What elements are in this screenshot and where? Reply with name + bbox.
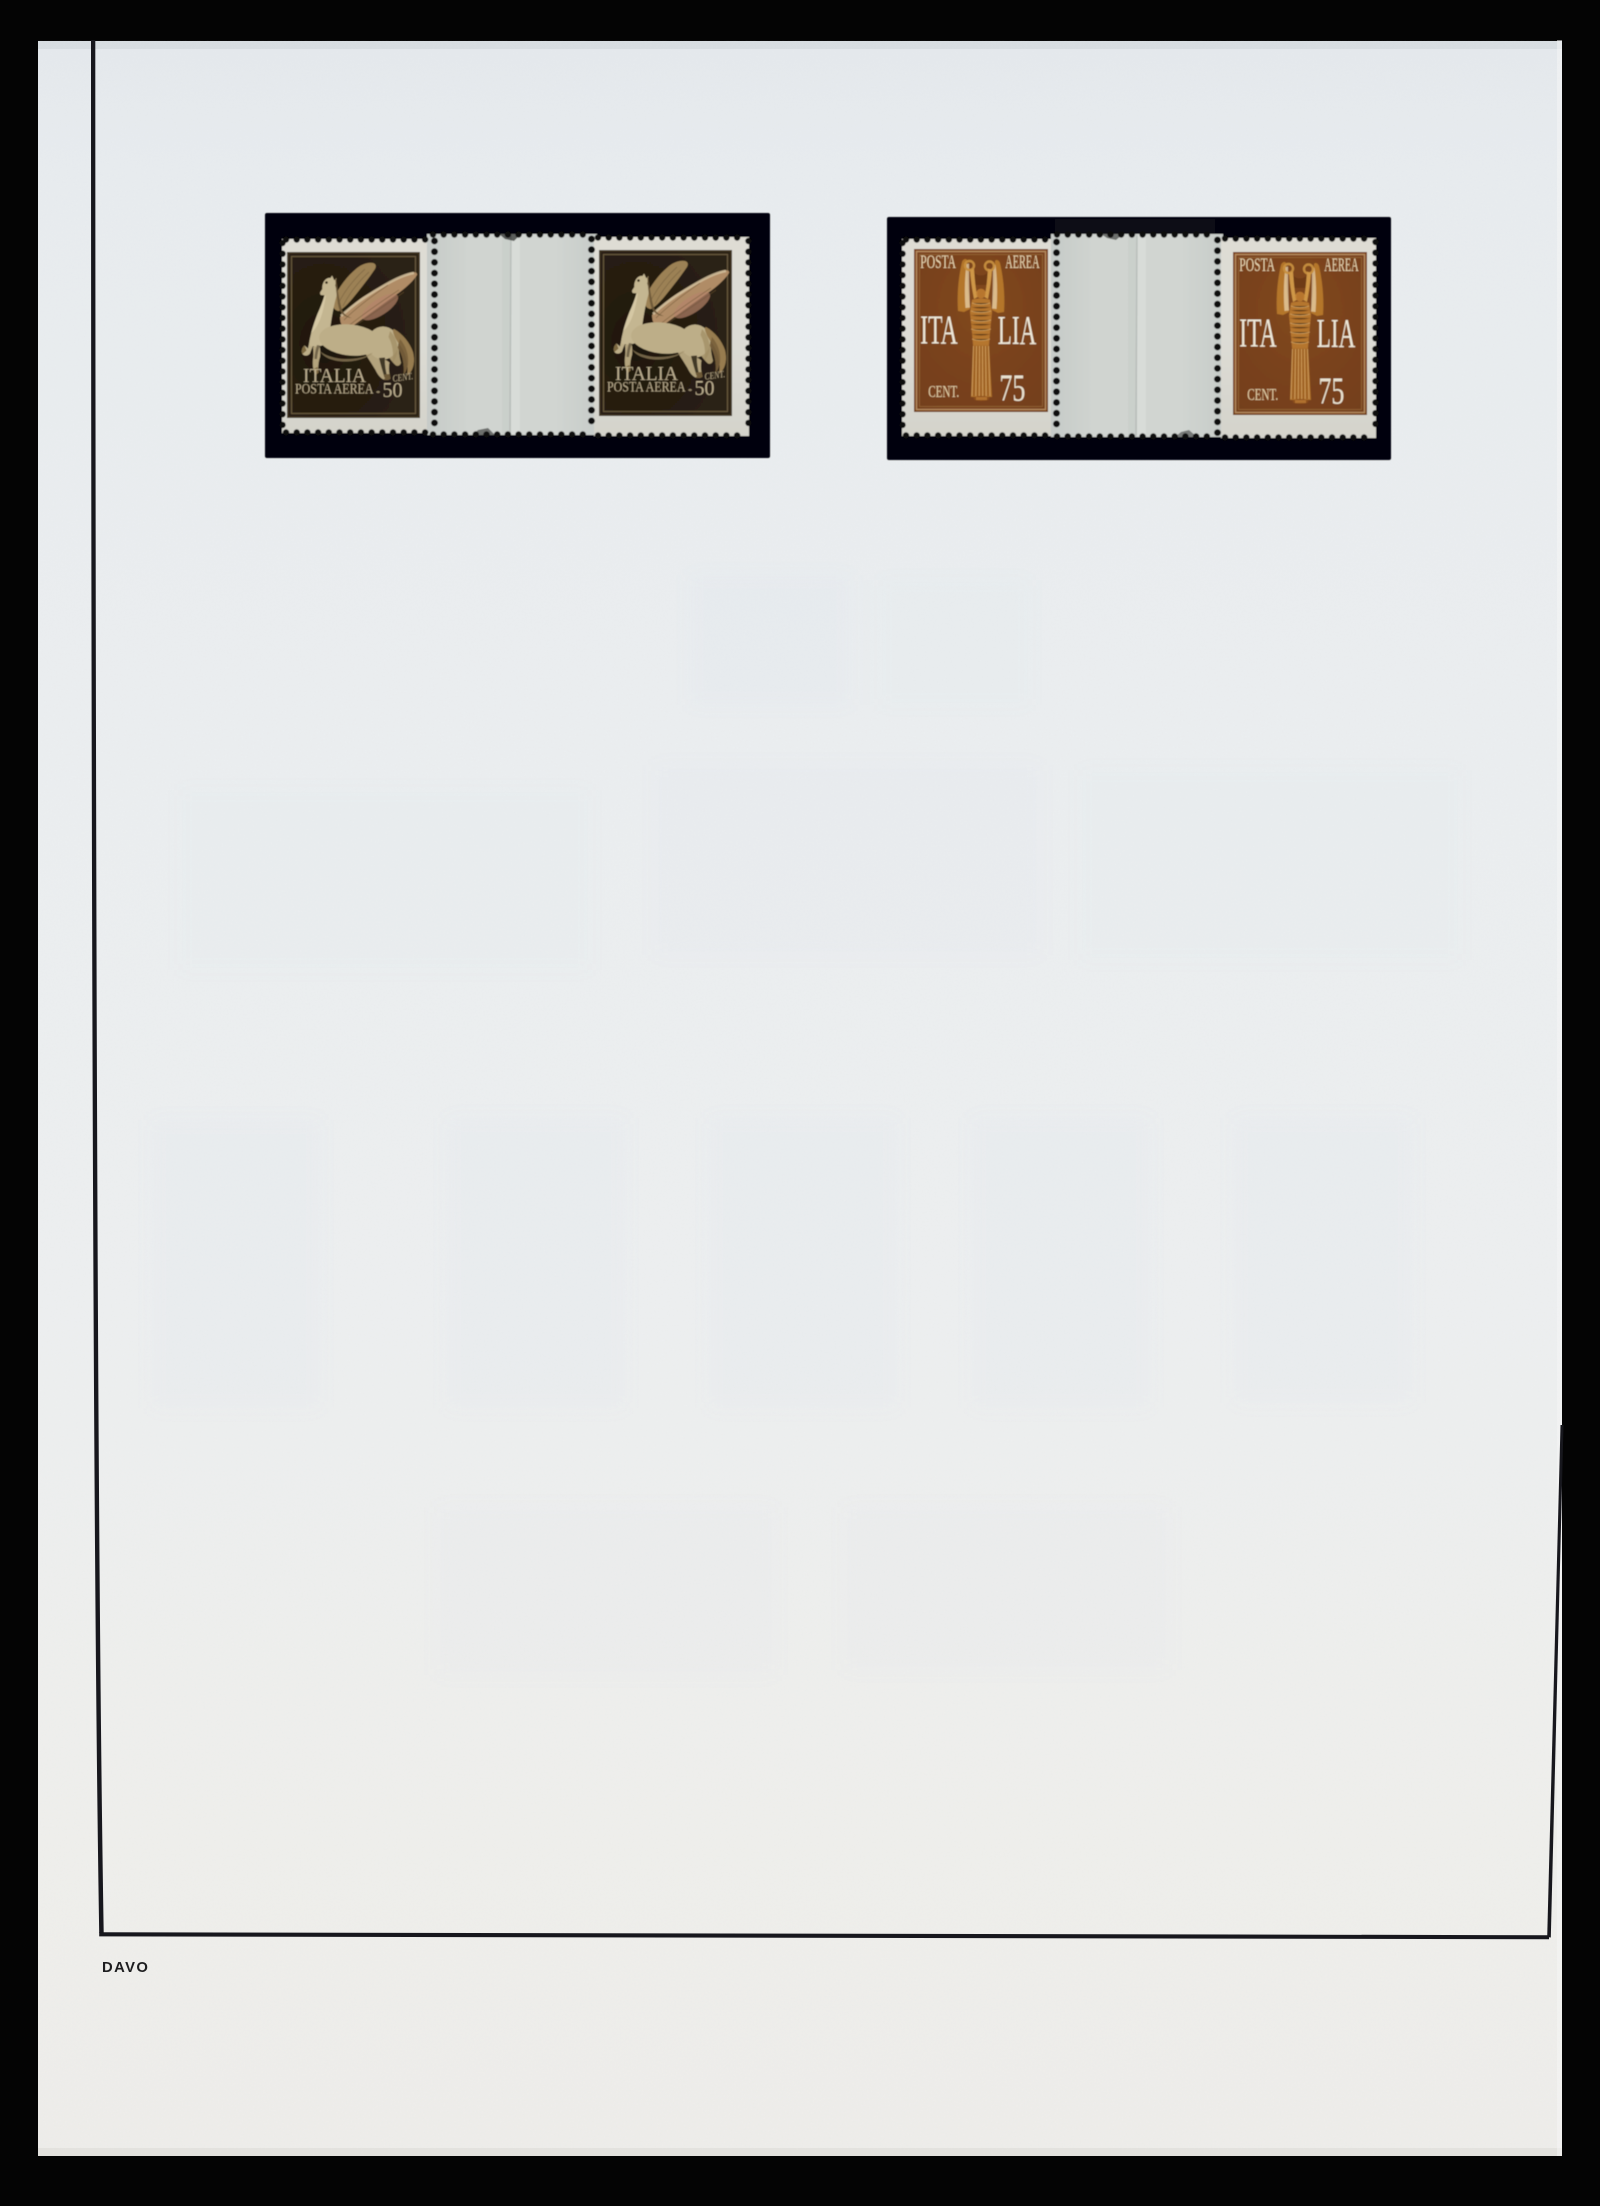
svg-text:DAVO: DAVO [102, 1960, 149, 1976]
